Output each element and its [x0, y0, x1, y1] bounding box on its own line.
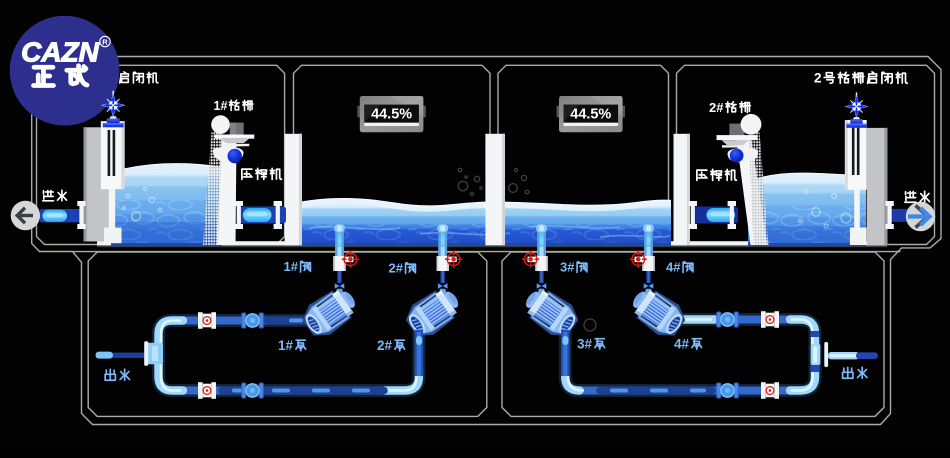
svg-text:1#: 1#: [214, 99, 228, 113]
svg-text:3#: 3#: [560, 260, 575, 275]
svg-text:44.5%: 44.5%: [570, 105, 611, 122]
svg-text:4#: 4#: [666, 260, 681, 275]
svg-text:CAZN: CAZN: [21, 37, 100, 68]
svg-text:1#: 1#: [278, 338, 294, 353]
svg-text:2#: 2#: [377, 338, 393, 353]
svg-text:1#: 1#: [284, 259, 299, 274]
svg-text:3#: 3#: [577, 337, 593, 352]
svg-text:2: 2: [814, 71, 822, 86]
svg-text:4#: 4#: [674, 337, 690, 352]
svg-text:2#: 2#: [709, 100, 724, 115]
svg-text:R: R: [102, 38, 108, 47]
svg-text:2#: 2#: [389, 261, 404, 276]
svg-text:44.5%: 44.5%: [371, 105, 412, 122]
